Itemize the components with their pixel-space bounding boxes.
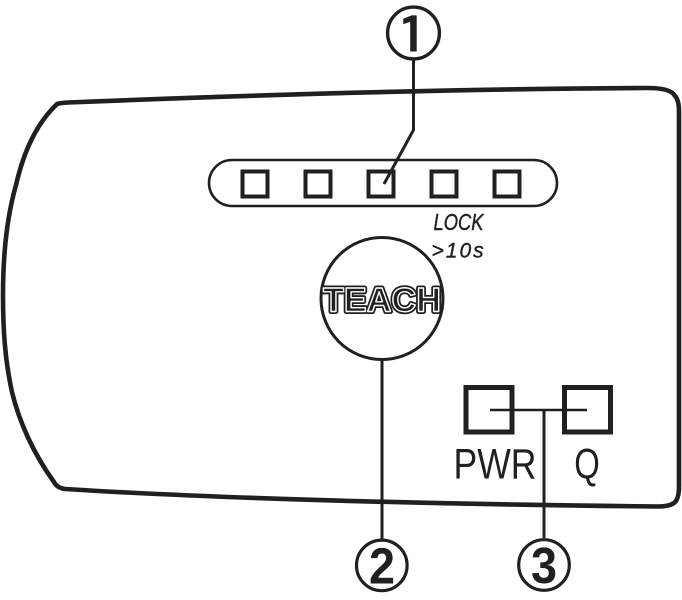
svg-text:PWR: PWR [454, 442, 537, 489]
svg-text:2: 2 [369, 537, 395, 594]
svg-text:LOCK: LOCK [434, 209, 485, 235]
svg-text:3: 3 [531, 537, 557, 594]
svg-text:>10s: >10s [432, 240, 486, 263]
svg-text:Q: Q [574, 441, 600, 489]
svg-text:TEACH: TEACH [323, 282, 441, 320]
